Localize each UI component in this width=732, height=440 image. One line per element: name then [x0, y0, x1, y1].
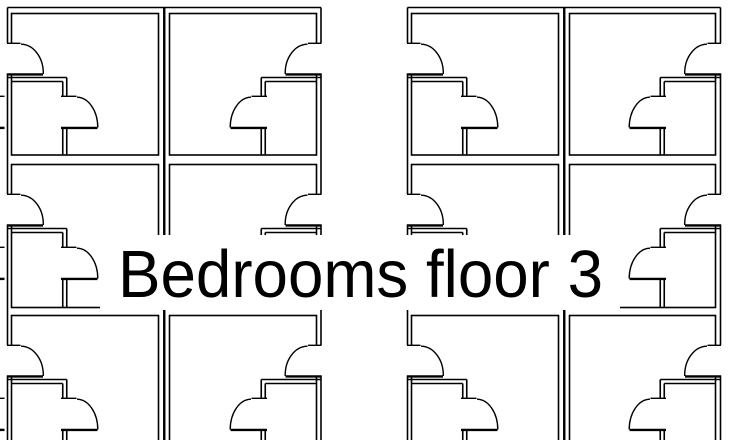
door-opening — [5, 194, 13, 225]
door-opening — [461, 398, 469, 429]
door-opening — [658, 247, 666, 278]
door-opening — [5, 43, 13, 74]
door-opening — [713, 43, 722, 74]
door-opening — [713, 194, 722, 225]
door-opening — [405, 43, 413, 74]
door-opening — [461, 96, 469, 127]
floor-title-label: Bedrooms floor 3 — [118, 237, 603, 312]
door-opening — [314, 345, 323, 376]
door-opening — [314, 194, 323, 225]
plan-background — [0, 0, 732, 440]
door-opening — [405, 345, 413, 376]
door-opening — [61, 96, 69, 127]
door-opening — [61, 398, 69, 429]
floor-plan-canvas: Bedrooms floor 3 — [0, 0, 732, 440]
door-opening — [658, 398, 666, 429]
floor-plan-view: Bedrooms floor 3 — [0, 0, 732, 440]
door-opening — [259, 398, 267, 429]
door-opening — [259, 96, 267, 127]
door-opening — [658, 96, 666, 127]
door-opening — [61, 247, 69, 278]
door-opening — [314, 43, 323, 74]
door-opening — [405, 194, 413, 225]
door-opening — [5, 345, 13, 376]
door-opening — [713, 345, 722, 376]
